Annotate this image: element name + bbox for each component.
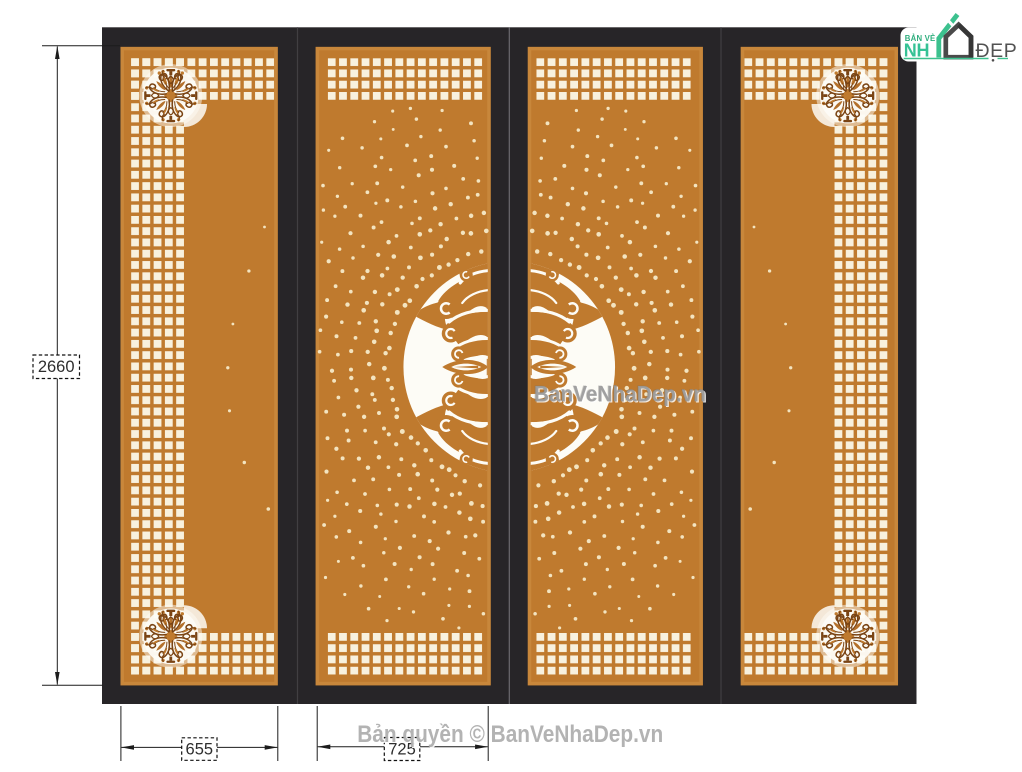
svg-text:BanVeNhaDep.vn: BanVeNhaDep.vn [534, 382, 706, 407]
svg-text:2660: 2660 [38, 358, 75, 376]
svg-text:NH: NH [904, 40, 929, 60]
svg-text:655: 655 [186, 740, 214, 758]
svg-text:Bản quyền © BanVeNhaDep.vn: Bản quyền © BanVeNhaDep.vn [357, 721, 663, 748]
